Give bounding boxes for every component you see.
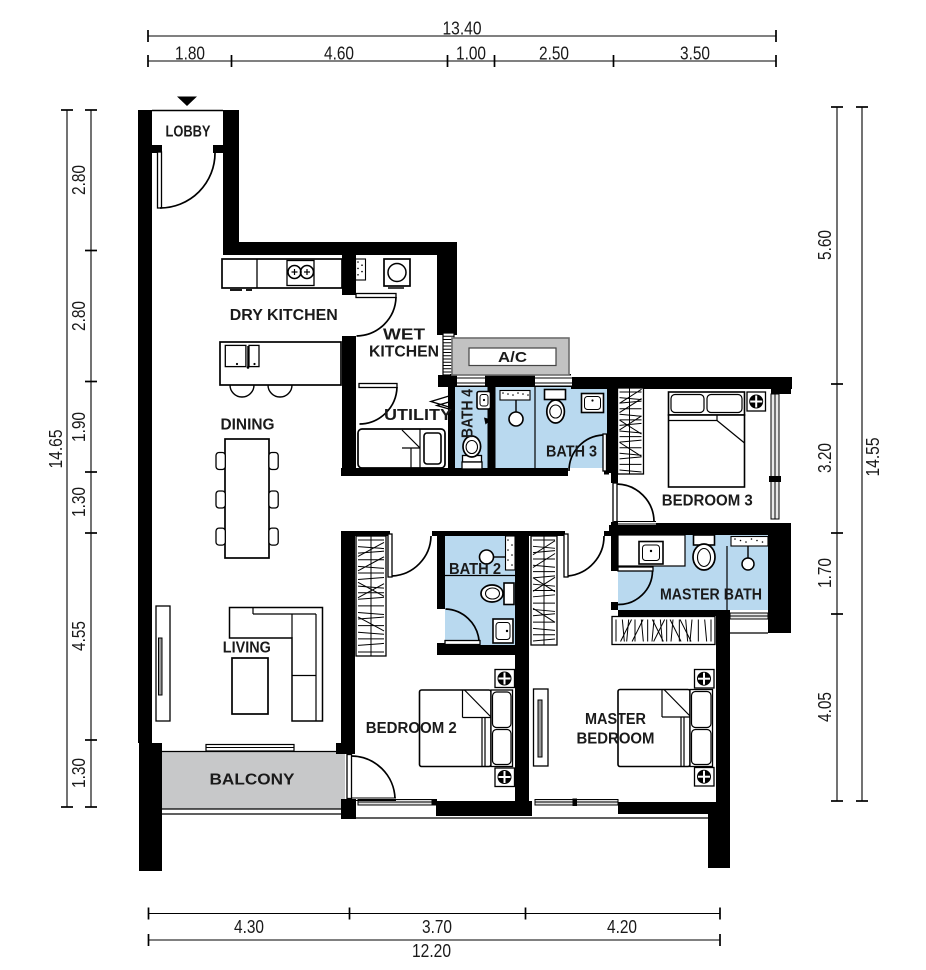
svg-text:14.55: 14.55 bbox=[863, 438, 883, 477]
svg-text:KITCHEN: KITCHEN bbox=[369, 344, 439, 361]
svg-text:A/C: A/C bbox=[498, 349, 527, 366]
svg-text:1.00: 1.00 bbox=[456, 44, 486, 64]
svg-text:1.30: 1.30 bbox=[69, 487, 89, 517]
svg-text:2.80: 2.80 bbox=[69, 165, 89, 195]
svg-text:4.20: 4.20 bbox=[607, 917, 637, 937]
svg-text:13.40: 13.40 bbox=[443, 19, 482, 39]
svg-text:1.30: 1.30 bbox=[69, 758, 89, 788]
svg-text:14.65: 14.65 bbox=[46, 430, 66, 469]
svg-text:DINING: DINING bbox=[221, 417, 275, 434]
svg-text:4.30: 4.30 bbox=[234, 917, 264, 937]
svg-text:MASTER BATH: MASTER BATH bbox=[660, 587, 762, 604]
svg-text:BEDROOM: BEDROOM bbox=[577, 731, 655, 748]
svg-text:BEDROOM 3: BEDROOM 3 bbox=[662, 493, 753, 510]
svg-text:MASTER: MASTER bbox=[585, 711, 646, 728]
svg-text:1.80: 1.80 bbox=[175, 44, 205, 64]
svg-text:4.05: 4.05 bbox=[815, 692, 835, 722]
svg-text:BEDROOM 2: BEDROOM 2 bbox=[366, 720, 457, 737]
svg-text:4.55: 4.55 bbox=[69, 621, 89, 651]
svg-text:1.70: 1.70 bbox=[815, 558, 835, 588]
svg-text:BATH 2: BATH 2 bbox=[449, 561, 501, 578]
svg-text:DRY KITCHEN: DRY KITCHEN bbox=[230, 307, 338, 324]
svg-text:LOBBY: LOBBY bbox=[166, 124, 211, 141]
svg-text:LIVING: LIVING bbox=[223, 640, 271, 657]
svg-text:UTILITY: UTILITY bbox=[384, 407, 452, 424]
svg-text:1.90: 1.90 bbox=[69, 412, 89, 442]
svg-text:2.50: 2.50 bbox=[539, 44, 569, 64]
svg-text:4.60: 4.60 bbox=[324, 44, 354, 64]
svg-text:3.20: 3.20 bbox=[815, 443, 835, 473]
svg-text:3.50: 3.50 bbox=[680, 44, 710, 64]
svg-text:3.70: 3.70 bbox=[422, 917, 452, 937]
svg-text:12.20: 12.20 bbox=[412, 941, 451, 961]
svg-text:BALCONY: BALCONY bbox=[210, 772, 295, 789]
svg-text:BATH 3: BATH 3 bbox=[546, 444, 597, 461]
svg-text:5.60: 5.60 bbox=[815, 230, 835, 260]
svg-text:2.80: 2.80 bbox=[69, 301, 89, 331]
svg-text:BATH 4: BATH 4 bbox=[460, 389, 477, 438]
svg-text:WET: WET bbox=[383, 327, 425, 344]
